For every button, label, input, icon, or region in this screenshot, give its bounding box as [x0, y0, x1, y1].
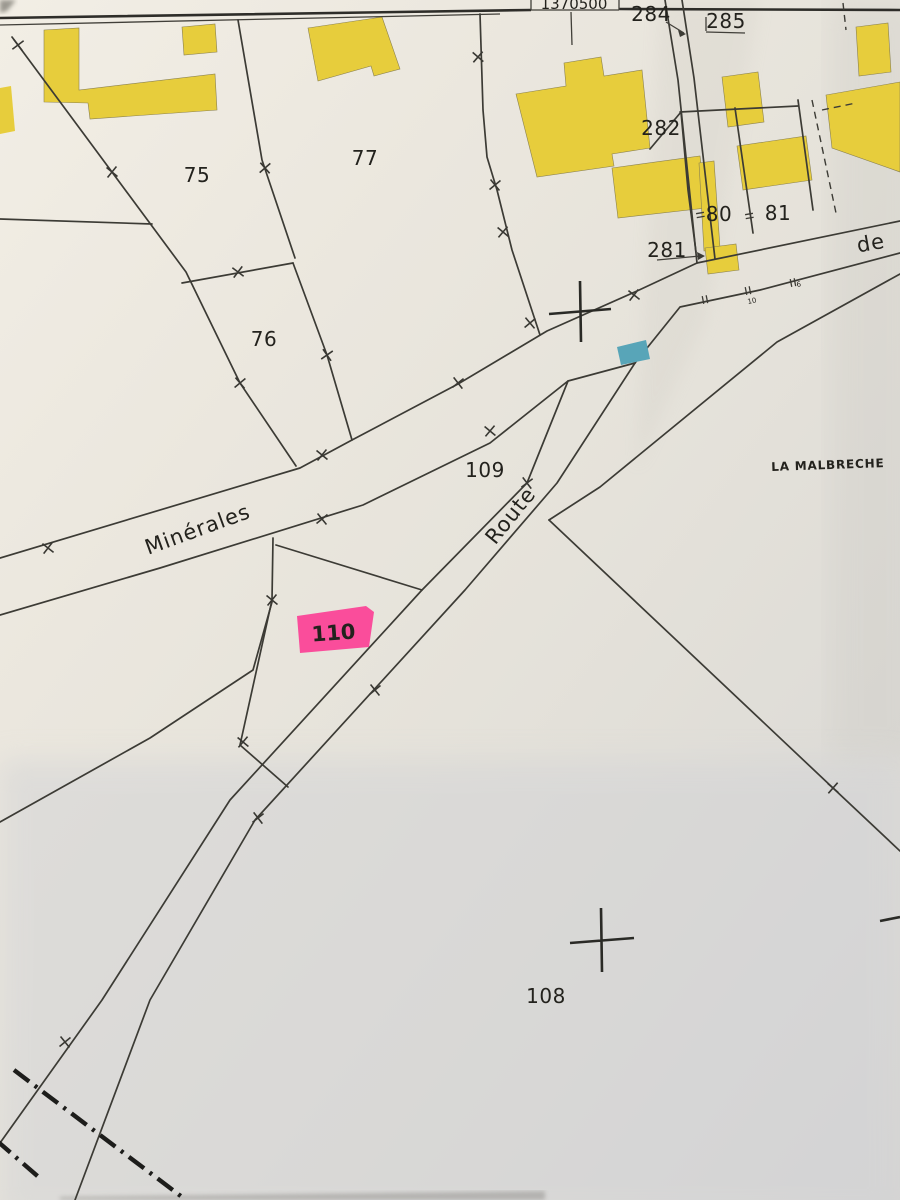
parcel-label-282: 282 [641, 116, 681, 140]
grid-coordinate-label: 1370500 [541, 0, 608, 13]
parcel-label-77: 77 [352, 146, 378, 170]
building [182, 24, 217, 55]
parcel-label-80: 80 [706, 202, 732, 226]
house-number-10: 10 [747, 296, 757, 306]
parcel-label-285: 285 [706, 9, 746, 33]
parcel-label-110: 110 [311, 620, 356, 647]
parcel-label-108: 108 [526, 984, 566, 1008]
building [737, 136, 812, 190]
building [856, 23, 891, 76]
parcel-label-284: 284 [631, 2, 671, 26]
parcel-label-75: 75 [184, 163, 210, 187]
building [722, 72, 764, 127]
building [705, 244, 739, 274]
map-canvas: 110 1370500 75 77 76 284 285 282 80 81 2… [0, 0, 900, 1200]
parcel-label-81: 81 [765, 201, 791, 225]
street-label-de: de [855, 229, 887, 258]
parcel-label-281: 281 [647, 238, 687, 262]
cadastral-map-photo: 110 1370500 75 77 76 284 285 282 80 81 2… [0, 0, 900, 1200]
parcel-label-109: 109 [465, 458, 505, 482]
parcel-label-76: 76 [251, 327, 277, 351]
